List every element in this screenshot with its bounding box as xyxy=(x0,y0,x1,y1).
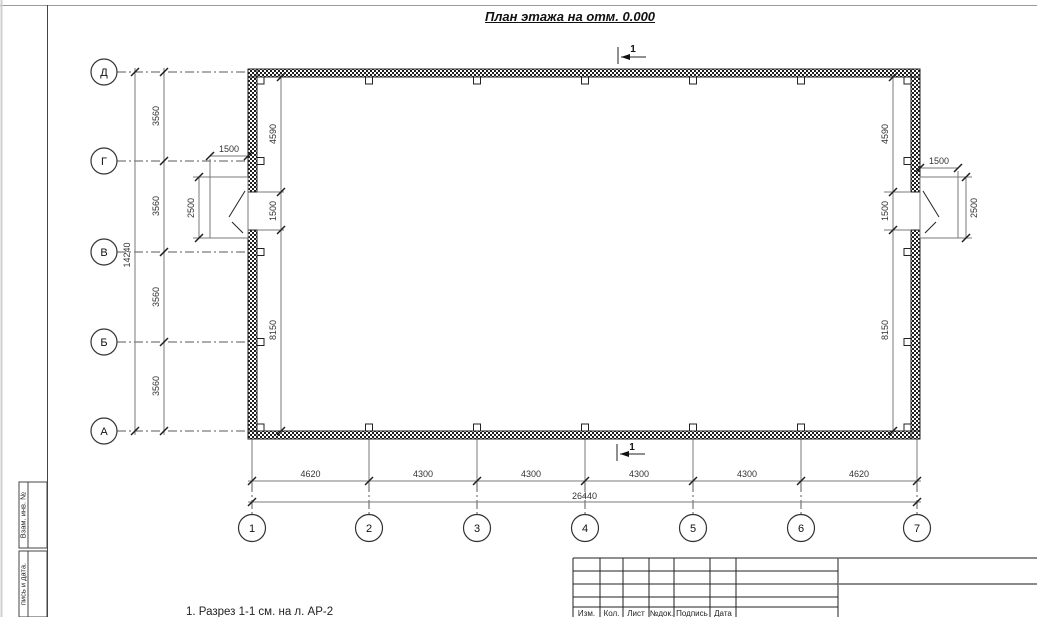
dim-int-left-3: 8150 xyxy=(268,320,278,340)
dim-int-left-2: 1500 xyxy=(268,201,278,221)
door-right-dim-ticks xyxy=(916,164,970,242)
section-mark-top-label: 1 xyxy=(630,44,636,55)
dim-bottom-5: 4300 xyxy=(737,469,757,479)
title-block-extension-lines xyxy=(838,558,1037,584)
axis-label-a: А xyxy=(100,426,108,438)
door-landing-left xyxy=(210,177,248,238)
titleblock-label-list: Лист xyxy=(627,609,645,617)
door-left-dim-ticks xyxy=(195,152,252,242)
door-left-dim-lines xyxy=(193,156,248,238)
section-mark-bottom-arrow xyxy=(620,451,629,457)
row-axis-lines xyxy=(117,72,250,431)
axis-label-6: 6 xyxy=(798,523,804,535)
dim-door-right-width: 1500 xyxy=(929,156,949,166)
sheet-frame xyxy=(0,0,1037,617)
floor-plan-canvas: Взам. инв. № пись и дата. Изм. Кол. Лист… xyxy=(0,0,1037,617)
dim-int-left-1: 4590 xyxy=(268,124,278,144)
titleblock-label-izm: Изм. xyxy=(578,609,595,617)
door-dimensions-right: 1500 2500 xyxy=(916,156,979,242)
stamp-label-vzam: Взам. инв. № xyxy=(19,492,28,538)
section-mark-bottom-label: 1 xyxy=(629,442,635,453)
pilaster-squares xyxy=(257,77,911,431)
axis-label-v: В xyxy=(100,247,107,259)
axis-label-g: Г xyxy=(101,156,107,168)
door-leaf-right xyxy=(923,191,939,233)
titleblock-label-podpis: Подпись xyxy=(676,609,708,617)
axis-label-7: 7 xyxy=(914,523,920,535)
dim-bottom-3: 4300 xyxy=(521,469,541,479)
dim-bottom-4: 4300 xyxy=(629,469,649,479)
dim-left-chain-4: 3560 xyxy=(151,376,161,396)
section-mark-top-arrow xyxy=(621,54,630,60)
dim-bottom-1: 4620 xyxy=(300,469,320,479)
dim-int-right-3: 8150 xyxy=(880,320,890,340)
left-dimensions: 14240 3560 3560 3560 3560 xyxy=(122,68,168,435)
dim-door-left-depth: 2500 xyxy=(186,198,196,218)
dim-door-right-depth: 2500 xyxy=(969,198,979,218)
dim-int-right-2: 1500 xyxy=(880,201,890,221)
dim-left-chain-2: 3560 xyxy=(151,196,161,216)
title-block-horizontals xyxy=(573,558,838,607)
axis-markers-bottom: 1 2 3 4 5 6 7 xyxy=(239,515,931,542)
door-landing-right xyxy=(920,177,958,238)
section-mark-bottom: 1 xyxy=(617,442,645,461)
axis-label-3: 3 xyxy=(474,523,480,535)
door-leaf-left xyxy=(229,191,245,233)
dim-bottom-total: 26440 xyxy=(572,491,597,501)
axis-label-d: Д xyxy=(100,67,108,79)
titleblock-label-kol: Кол. xyxy=(604,609,620,617)
section-mark-top: 1 xyxy=(618,44,646,64)
title-block: Изм. Кол. Лист №док. Подпись Дата xyxy=(573,558,1037,617)
axis-label-2: 2 xyxy=(366,523,372,535)
dim-left-total: 14240 xyxy=(122,242,132,267)
building-walls xyxy=(248,69,920,439)
dim-left-chain-3: 3560 xyxy=(151,287,161,307)
axis-label-b: Б xyxy=(100,337,107,349)
stamp-label-podpis: пись и дата. xyxy=(19,563,28,605)
dim-door-left-width: 1500 xyxy=(219,144,239,154)
axis-label-5: 5 xyxy=(690,523,696,535)
door-dimensions-left: 1500 2500 xyxy=(186,144,252,242)
drawing-page: План этажа на отм. 0.000 1. Разрез 1-1 с… xyxy=(0,0,1037,617)
dim-bottom-2: 4300 xyxy=(413,469,433,479)
dim-int-right-1: 4590 xyxy=(880,124,890,144)
axis-label-4: 4 xyxy=(582,523,588,535)
axis-markers-left: Д Г В Б А xyxy=(91,59,117,444)
col-axis-extension-solid xyxy=(252,439,917,483)
titleblock-label-ndok: №док. xyxy=(650,609,673,617)
dim-left-chain-1: 3560 xyxy=(151,106,161,126)
dim-bottom-6: 4620 xyxy=(849,469,869,479)
axis-label-1: 1 xyxy=(249,523,255,535)
titleblock-label-data: Дата xyxy=(714,609,732,617)
stamp-column: Взам. инв. № пись и дата. xyxy=(19,482,48,617)
